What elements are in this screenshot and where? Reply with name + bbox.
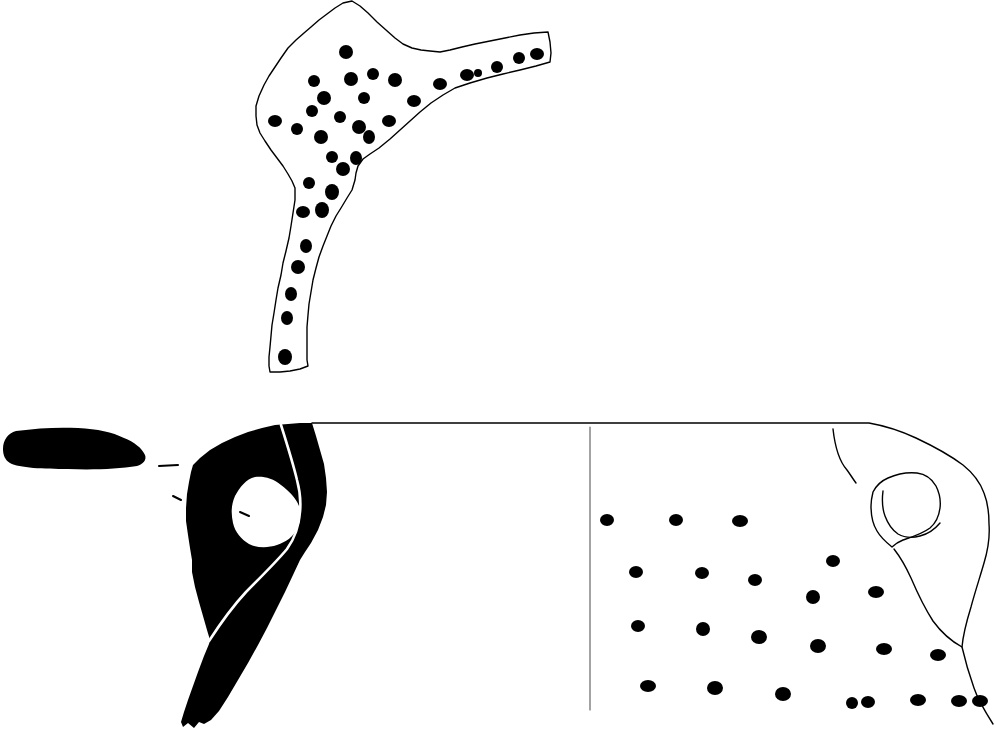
vessel-shoulder-curve: [894, 549, 962, 647]
vessel-punctate-dots: [600, 514, 988, 709]
punctate-dot: [474, 69, 482, 77]
punctate-dot: [631, 620, 645, 632]
pottery-figure: [0, 0, 995, 730]
punctate-dot: [317, 91, 331, 105]
punctate-dot: [640, 680, 656, 692]
punctate-dot: [308, 75, 320, 87]
punctate-dot: [268, 115, 282, 127]
punctate-dot: [868, 586, 884, 598]
punctate-dot: [278, 349, 292, 365]
punctate-dot: [350, 151, 362, 165]
punctate-dot: [336, 162, 350, 176]
punctate-dot: [291, 260, 305, 274]
punctate-dot: [339, 45, 353, 59]
handle-top-profile-solid: [3, 428, 146, 470]
punctate-dot: [460, 69, 474, 81]
punctate-dot: [363, 130, 375, 144]
leader-tick: [173, 496, 181, 500]
punctate-dot: [696, 622, 710, 636]
punctate-dot: [775, 687, 791, 701]
sherd-outline: [256, 1, 551, 372]
leader-dash: [159, 465, 178, 466]
punctate-dot: [315, 202, 329, 218]
punctate-dot: [281, 311, 293, 325]
punctate-dot: [334, 111, 346, 123]
punctate-dot: [352, 120, 366, 134]
sherd-punctate-dots: [268, 45, 544, 365]
punctate-dot: [846, 697, 858, 709]
punctate-dot: [861, 696, 875, 708]
punctate-dot: [314, 130, 328, 144]
punctate-dot: [732, 515, 748, 527]
punctate-dot: [407, 95, 421, 107]
punctate-dot: [669, 514, 683, 526]
punctate-dot: [951, 695, 967, 707]
pottery-figure-svg: [0, 0, 995, 730]
punctate-dot: [751, 630, 767, 644]
punctate-dot: [296, 206, 310, 218]
punctate-dot: [382, 115, 396, 127]
punctate-dot: [810, 639, 826, 653]
punctate-dot: [388, 73, 402, 87]
punctate-dot: [513, 52, 525, 64]
punctate-dot: [806, 590, 820, 604]
punctate-dot: [433, 78, 447, 90]
punctate-dot: [695, 567, 709, 579]
punctate-dot: [367, 68, 379, 80]
punctate-dot: [707, 681, 723, 695]
vessel-neck-arc: [833, 429, 856, 483]
punctate-dot: [491, 61, 503, 73]
punctate-dot: [291, 123, 303, 135]
punctate-dot: [876, 643, 892, 655]
punctate-dot: [629, 566, 643, 578]
handle-section-solid: [181, 423, 327, 728]
punctate-dot: [826, 555, 840, 567]
punctate-dot: [600, 514, 614, 526]
punctate-dot: [285, 287, 297, 301]
punctate-dot: [748, 574, 762, 586]
punctate-dot: [326, 151, 338, 163]
punctate-dot: [530, 48, 544, 60]
punctate-dot: [306, 105, 318, 117]
punctate-dot: [930, 649, 946, 661]
punctate-dot: [300, 239, 312, 253]
lug-outer-outline: [871, 473, 940, 547]
punctate-dot: [972, 695, 988, 707]
punctate-dot: [303, 177, 315, 189]
punctate-dot: [325, 184, 339, 200]
punctate-dot: [358, 92, 370, 104]
punctate-dot: [344, 72, 358, 86]
vessel-rim-and-profile: [312, 423, 993, 724]
punctate-dot: [910, 694, 926, 706]
lug-inner-outline: [882, 491, 940, 537]
